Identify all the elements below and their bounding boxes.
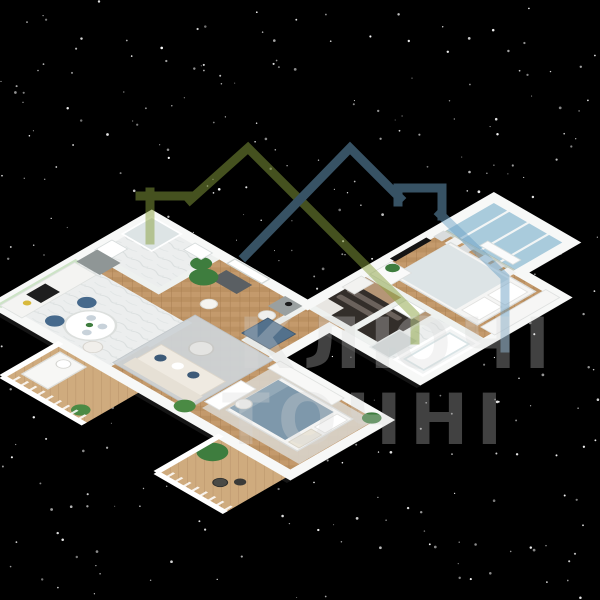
star [429,543,431,545]
star [492,29,495,32]
star [341,253,343,255]
star [245,186,247,188]
star [563,133,565,135]
star [533,549,536,552]
star [139,505,141,507]
star [578,110,580,112]
star [23,92,25,94]
star [583,446,585,448]
star [478,190,481,193]
star [171,105,172,106]
star [531,96,532,97]
star [219,75,221,77]
star [582,313,584,315]
star [582,524,584,526]
star [424,530,425,531]
star [574,553,576,555]
star [577,407,579,409]
star [401,115,402,116]
star [530,546,532,548]
star [385,519,387,521]
star [265,138,268,141]
star [281,515,284,518]
star [510,551,512,553]
star [57,587,59,589]
star [369,35,371,37]
star [150,580,151,581]
star [379,138,381,140]
star [44,179,45,180]
star [342,462,344,464]
star [193,232,194,233]
star [468,171,471,174]
star [111,423,112,424]
star [203,64,205,66]
star [99,573,101,575]
star [80,37,82,39]
star [145,107,147,109]
star [7,258,9,260]
star [132,120,133,121]
star [291,220,292,221]
star [9,388,11,390]
star [114,506,115,507]
star [447,51,449,53]
star [131,55,133,57]
star [2,466,4,468]
star [143,488,144,489]
star [325,14,327,16]
star [75,48,77,50]
star [534,274,535,275]
star [576,499,578,501]
scene-svg: КЛЮЧІ ТОЧНІ [0,0,600,600]
star [334,189,335,190]
star [160,47,163,50]
star [568,560,570,562]
star [449,100,450,101]
star [597,398,600,401]
star [333,524,334,525]
star [278,66,280,68]
star [316,288,318,290]
star [98,0,100,2]
star [201,65,202,66]
star [11,456,13,458]
star [45,438,47,440]
star [22,102,23,103]
star [213,192,215,194]
star [594,439,596,441]
star [170,560,173,563]
star [197,28,199,30]
star [379,546,382,549]
star [580,66,582,68]
star [296,597,297,598]
star [523,177,524,178]
star [276,60,278,62]
star [579,597,582,600]
star [275,149,277,151]
star [556,159,558,161]
star [198,520,200,522]
star [470,578,472,580]
star [42,15,43,16]
star [407,507,409,509]
star [16,85,18,87]
star [458,563,459,564]
star [486,173,487,174]
star [61,538,64,541]
star [273,63,275,65]
star [45,19,47,21]
star [225,116,226,117]
star [94,593,95,594]
star [217,579,218,580]
star [313,482,315,484]
star [24,178,25,179]
star [71,72,73,74]
star [347,192,348,193]
star [51,218,52,219]
star [159,144,160,145]
star [43,254,44,255]
star [344,254,345,255]
star [16,541,18,543]
star [43,63,45,65]
star [236,240,237,241]
star [165,60,167,62]
star [587,366,589,368]
star [294,68,297,71]
star [203,70,205,72]
star [420,511,422,513]
star [325,596,327,598]
star [575,138,576,139]
star [459,542,460,543]
star [507,50,509,52]
watermark-line-2: ТОЧНІ [222,379,510,461]
star [72,144,74,146]
star [193,67,195,69]
star [434,546,437,549]
star [546,581,548,583]
star [41,578,43,580]
star [289,523,290,524]
star [1,175,3,177]
star [353,103,355,105]
star [489,572,492,575]
star [322,268,325,271]
star [204,529,206,531]
star [15,444,16,445]
star [526,74,528,76]
star [512,164,514,166]
star [594,55,596,57]
star [532,196,534,198]
star [80,119,82,121]
star [26,21,28,23]
star [354,181,356,183]
star [50,508,53,511]
star [411,77,412,78]
star [395,119,396,120]
star [545,545,547,547]
star [70,505,73,508]
star [56,532,58,534]
star [461,157,462,158]
star [218,188,221,191]
star [493,165,494,166]
star [33,130,34,131]
star [418,134,420,136]
star [55,166,57,168]
star [168,157,170,159]
star [96,550,99,553]
star [221,83,223,85]
star [86,505,88,507]
star [67,227,68,228]
star [87,493,89,495]
star [10,246,12,248]
star [278,260,279,261]
star [564,495,566,497]
star [360,204,362,206]
star [260,220,262,222]
star [454,493,455,494]
star [587,100,589,102]
star [39,482,41,484]
star [256,122,257,123]
star [184,97,185,98]
star [550,71,551,72]
star [136,124,138,126]
star [493,499,496,502]
star [556,454,558,456]
star [82,450,85,453]
star [66,107,68,109]
star [458,577,460,579]
star [371,258,373,260]
star [262,31,264,33]
star [167,149,170,152]
star [273,39,276,42]
star [213,122,215,124]
star [29,135,31,137]
star [377,110,379,112]
star [519,70,521,72]
star [593,369,595,371]
star [597,237,598,238]
star [466,190,468,192]
star [377,497,378,498]
star [559,107,562,110]
star [126,40,128,42]
star [338,209,341,212]
star [0,81,1,82]
star [330,40,332,42]
star [341,541,343,543]
star [120,172,122,174]
star [10,566,12,568]
star [356,517,359,520]
star [469,84,471,86]
star [594,290,596,292]
star [234,83,235,84]
star [256,11,258,13]
star [33,416,35,418]
star [295,19,297,21]
star [123,91,124,92]
watermark-text: КЛЮЧІ ТОЧНІ [222,303,558,461]
star [530,405,531,406]
star [495,118,498,121]
star [515,419,517,421]
star [570,145,572,147]
star [427,166,429,168]
star [95,565,96,566]
star [468,37,471,40]
star [241,556,243,558]
star [381,213,384,216]
star [204,25,206,27]
star [133,190,136,193]
star [167,216,169,218]
star [106,447,108,449]
star [274,250,275,251]
star [567,580,569,582]
star [317,529,319,531]
star [523,42,525,44]
star [490,126,491,127]
star [313,275,315,277]
star [33,244,34,245]
star [354,100,355,101]
star [76,556,78,558]
floorplan-render: КЛЮЧІ ТОЧНІ [0,0,600,600]
star [166,485,168,487]
star [474,543,477,546]
star [507,173,508,174]
star [37,70,39,72]
star [408,40,410,42]
star [397,13,399,15]
star [318,160,319,161]
star [454,118,455,119]
star [496,133,498,135]
star [528,8,530,10]
star [291,250,292,251]
star [106,133,109,136]
star [399,130,401,132]
star [442,26,443,27]
star [516,453,518,455]
watermark-line-1: КЛЮЧІ [238,303,558,385]
star [254,141,256,143]
star [277,488,279,490]
star [243,214,244,215]
star [286,165,287,166]
star [14,91,17,94]
star [1,345,3,347]
